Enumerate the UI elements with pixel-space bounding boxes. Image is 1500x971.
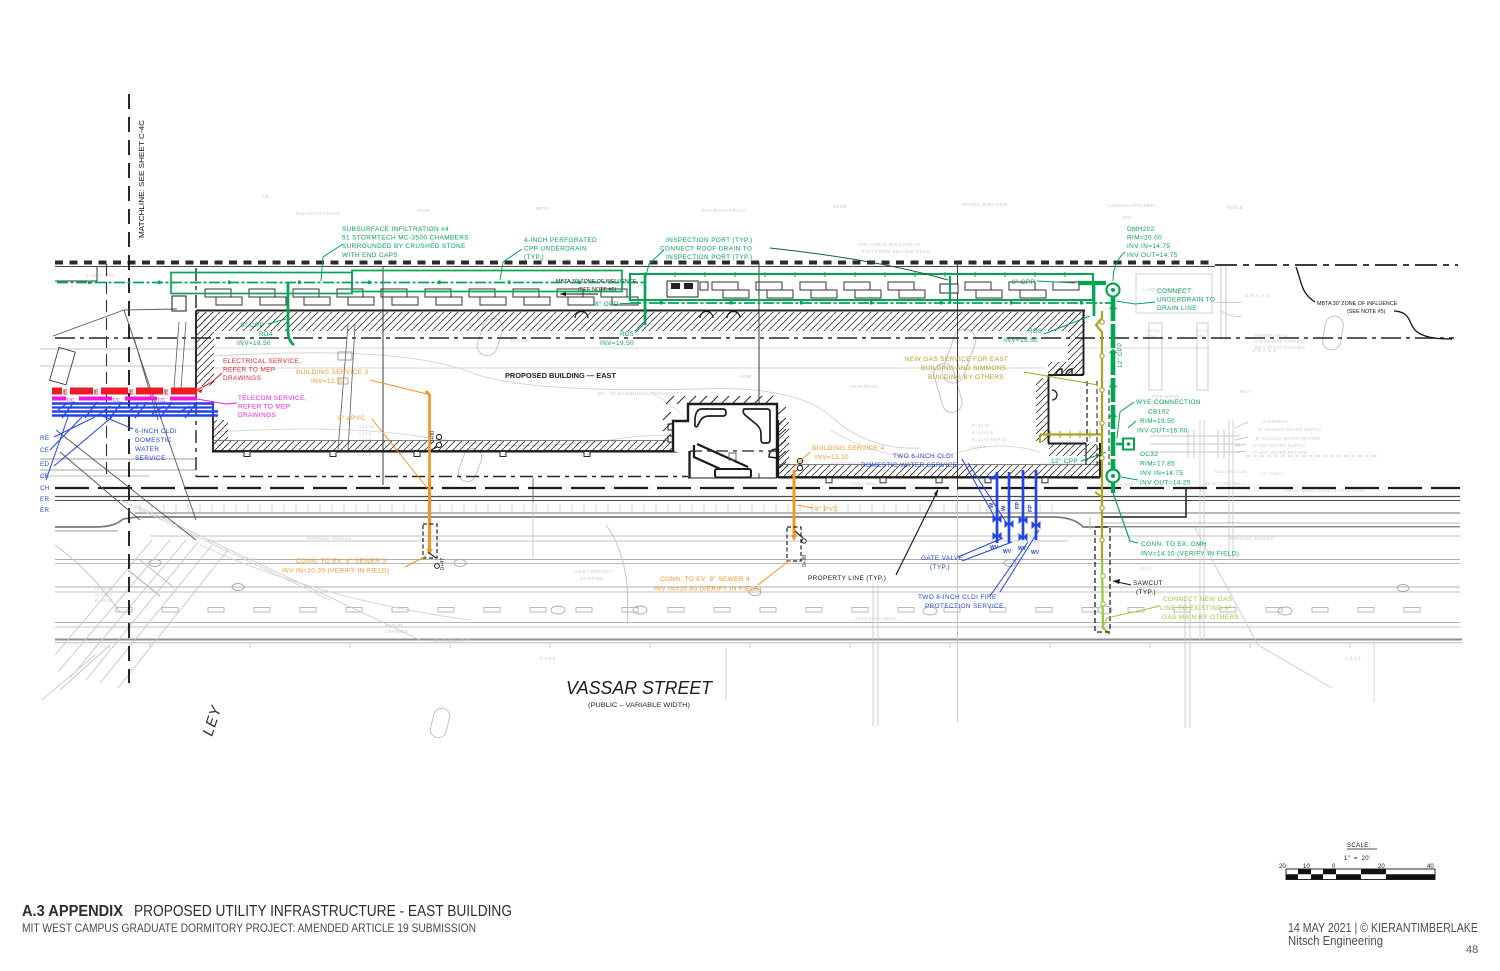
svg-text:278 VASSAR STREET: 278 VASSAR STREET bbox=[1255, 339, 1303, 344]
svg-text:CE: CE bbox=[40, 447, 49, 454]
svg-text:CE: CE bbox=[40, 473, 49, 480]
svg-text:CB102: CB102 bbox=[1148, 409, 1170, 416]
svg-text:FF CONET: FF CONET bbox=[1261, 471, 1283, 476]
svg-text:RAILROAD TRACK: RAILROAD TRACK bbox=[702, 208, 747, 213]
svg-text:INSPECTION PORT (TYP.): INSPECTION PORT (TYP.) bbox=[666, 237, 753, 244]
svg-text:RIM=17.85: RIM=17.85 bbox=[1140, 461, 1175, 468]
svg-text:I=14.10: I=14.10 bbox=[358, 424, 375, 429]
svg-text:A=14+5.6: A=14+5.6 bbox=[972, 430, 993, 435]
svg-text:SPUR: SPUR bbox=[833, 204, 847, 209]
svg-text:INV=12.10: INV=12.10 bbox=[815, 454, 849, 461]
svg-text:4' HIGH CUT: 4' HIGH CUT bbox=[86, 273, 115, 278]
svg-text:B2 - TELECOMMUNICATION DUCT: B2 - TELECOMMUNICATION DUCT bbox=[598, 391, 679, 396]
svg-text:MATCHLINE: SEE SHEET C-4C: MATCHLINE: SEE SHEET C-4C bbox=[137, 119, 146, 238]
svg-text:WYE CONNECTION: WYE CONNECTION bbox=[1136, 399, 1201, 406]
svg-text:LANDSCAPED AREA: LANDSCAPED AREA bbox=[1108, 203, 1158, 208]
svg-text:WV: WV bbox=[1003, 549, 1012, 555]
svg-text:ANT CABLE WILL ARE IN: ANT CABLE WILL ARE IN bbox=[858, 242, 921, 248]
svg-text:8" OPP: 8" OPP bbox=[595, 301, 619, 308]
svg-text:TWO 6-INCH CLDI: TWO 6-INCH CLDI bbox=[893, 453, 953, 460]
svg-text:G R A S S: G R A S S bbox=[1245, 293, 1269, 299]
svg-text:INV=19.50: INV=19.50 bbox=[237, 340, 271, 347]
svg-text:ER: ER bbox=[40, 496, 50, 503]
svg-text:(TYP.): (TYP.) bbox=[524, 254, 544, 261]
svg-text:FENCE: FENCE bbox=[1226, 205, 1243, 210]
svg-text:PROPOSED BUILDING — EAST: PROPOSED BUILDING — EAST bbox=[505, 371, 616, 380]
svg-text:PARKING SPACES: PARKING SPACES bbox=[1230, 536, 1273, 541]
svg-text:51 STORMTECH MC-3500 CHAMBERS: 51 STORMTECH MC-3500 CHAMBERS bbox=[342, 235, 469, 242]
svg-text:VASSAR STREET: VASSAR STREET bbox=[566, 678, 714, 698]
svg-text:8" CPP: 8" CPP bbox=[241, 322, 264, 329]
svg-text:FP: FP bbox=[1015, 502, 1021, 509]
svg-text:20%: 20% bbox=[1122, 215, 1132, 220]
svg-text:INV=12.50: INV=12.50 bbox=[311, 378, 345, 385]
svg-text:CH: CH bbox=[40, 485, 50, 492]
svg-text:PARKING SPACES: PARKING SPACES bbox=[308, 536, 351, 541]
svg-text:0+00: 0+00 bbox=[430, 431, 436, 443]
svg-text:E: E bbox=[129, 390, 134, 397]
svg-text:INLET PROTECT: INLET PROTECT bbox=[575, 569, 613, 574]
svg-text:0+38: 0+38 bbox=[802, 555, 808, 567]
svg-text:23 IN-DBL-WHT: 23 IN-DBL-WHT bbox=[434, 638, 470, 643]
svg-text:CONNECT: CONNECT bbox=[1157, 288, 1191, 295]
svg-text:BUILDING AND SIMMONS: BUILDING AND SIMMONS bbox=[921, 365, 1006, 372]
svg-text:E: E bbox=[63, 390, 68, 397]
svg-text:CONN. TO EV. 8" SEWER 4: CONN. TO EV. 8" SEWER 4 bbox=[660, 576, 750, 583]
svg-text:RD6: RD6 bbox=[1028, 328, 1042, 335]
svg-text:W: W bbox=[1001, 505, 1007, 511]
svg-text:TWO 8-INCH CLDI FIRE: TWO 8-INCH CLDI FIRE bbox=[918, 594, 997, 601]
svg-text:FP: FP bbox=[1028, 505, 1034, 512]
svg-text:12" CPP: 12" CPP bbox=[1051, 458, 1078, 465]
svg-text:BUILDING SERVICE 4: BUILDING SERVICE 4 bbox=[812, 445, 884, 452]
svg-text:4-INCH PERFORATED: 4-INCH PERFORATED bbox=[524, 237, 597, 244]
svg-text:CONNECT NEW GAS: CONNECT NEW GAS bbox=[1163, 596, 1232, 603]
svg-text:SURROUNDED BY CRUSHED STONE: SURROUNDED BY CRUSHED STONE bbox=[342, 243, 466, 250]
svg-text:DRAWINGS: DRAWINGS bbox=[238, 412, 276, 419]
svg-text:OVERHEAD: OVERHEAD bbox=[1262, 419, 1288, 424]
svg-text:MIT WEST CAMPUS GRADUATE DORMI: MIT WEST CAMPUS GRADUATE DORMITORY PROJE… bbox=[22, 923, 476, 935]
svg-text:SCALE:: SCALE: bbox=[1347, 843, 1371, 849]
svg-text:RIM=20.00: RIM=20.00 bbox=[1127, 235, 1162, 242]
svg-text:GAS MAIN BY OTHERS: GAS MAIN BY OTHERS bbox=[1162, 614, 1239, 621]
svg-text:0+47: 0+47 bbox=[440, 558, 446, 570]
svg-text:TUIT FROM SECOND PLAN: TUIT FROM SECOND PLAN bbox=[862, 249, 930, 255]
svg-text:6-INCH CLDI: 6-INCH CLDI bbox=[135, 428, 177, 435]
svg-text:MBTA 30' ZONE OF INFLUENCE: MBTA 30' ZONE OF INFLUENCE bbox=[1317, 301, 1398, 307]
svg-text:TELECOM SERVICE,: TELECOM SERVICE, bbox=[238, 395, 307, 402]
svg-text:WATER: WATER bbox=[135, 446, 159, 453]
svg-text:SUBSURFACE INFILTRATION #4: SUBSURFACE INFILTRATION #4 bbox=[342, 226, 449, 233]
svg-text:BUILDING BY OTHERS: BUILDING BY OTHERS bbox=[928, 374, 1004, 381]
svg-text:(TYP.): (TYP.) bbox=[1136, 589, 1156, 596]
svg-text:I=14.5: I=14.5 bbox=[972, 444, 986, 449]
svg-text:MBTA: MBTA bbox=[536, 206, 550, 211]
svg-text:4 8 8 5: 4 8 8 5 bbox=[540, 656, 556, 661]
svg-text:NEW GAS SERVICE FOR EAST: NEW GAS SERVICE FOR EAST bbox=[905, 356, 1008, 363]
svg-text:RIM=19.50: RIM=19.50 bbox=[1140, 418, 1175, 425]
svg-text:INV IN=14.75: INV IN=14.75 bbox=[1127, 243, 1170, 250]
svg-text:4" HOT WATER RETURN: 4" HOT WATER RETURN bbox=[1253, 450, 1307, 455]
svg-text:Nitsch Engineering: Nitsch Engineering bbox=[1288, 934, 1383, 948]
svg-text:I=11.8: I=11.8 bbox=[358, 452, 372, 457]
svg-text:UNDERDRAIN TO: UNDERDRAIN TO bbox=[1157, 297, 1215, 304]
svg-text:DOMESTIC: DOMESTIC bbox=[135, 437, 172, 444]
svg-text:4" HOT WATER SUPPLY: 4" HOT WATER SUPPLY bbox=[1253, 443, 1306, 448]
svg-text:6" CHILLED WATER RETURN: 6" CHILLED WATER RETURN bbox=[1256, 436, 1320, 441]
svg-text:SAWCUT: SAWCUT bbox=[1133, 580, 1163, 587]
svg-text:9+25: 9+25 bbox=[445, 561, 456, 566]
svg-text:PROPERTY LINE (TYP.): PROPERTY LINE (TYP.) bbox=[808, 575, 886, 582]
svg-text:INV IN=10.30 (VERIFY IN FIELD): INV IN=10.30 (VERIFY IN FIELD) bbox=[282, 568, 390, 575]
svg-text:CPP UNDERDRAIN: CPP UNDERDRAIN bbox=[524, 246, 587, 253]
svg-text:REFER TO MEP: REFER TO MEP bbox=[238, 404, 291, 411]
svg-text:ER: ER bbox=[40, 507, 50, 514]
svg-text:8" PVC: 8" PVC bbox=[815, 506, 838, 513]
svg-text:CHAMBER: CHAMBER bbox=[385, 629, 408, 634]
svg-text:INSPECTION PORT (TYP.): INSPECTION PORT (TYP.) bbox=[666, 254, 753, 261]
svg-text:SERVICE: SERVICE bbox=[135, 455, 166, 462]
svg-text:INV=19.50: INV=19.50 bbox=[600, 340, 634, 347]
svg-text:CONN. TO EX. 8" SEWER 3: CONN. TO EX. 8" SEWER 3 bbox=[296, 558, 386, 565]
svg-text:ROW: ROW bbox=[418, 208, 430, 213]
svg-text:INV OUT=14.25: INV OUT=14.25 bbox=[1140, 480, 1191, 487]
svg-text:MA 5 STORY PARKING: MA 5 STORY PARKING bbox=[1255, 345, 1305, 350]
svg-text:25 IN CONC WALL: 25 IN CONC WALL bbox=[1205, 481, 1247, 486]
svg-text:GATE VALVE: GATE VALVE bbox=[921, 555, 963, 562]
svg-text:CONNECT ROOF DRAIN TO: CONNECT ROOF DRAIN TO bbox=[660, 246, 752, 253]
svg-text:3D PARKING: 3D PARKING bbox=[850, 384, 880, 389]
svg-text:EXISTING: EXISTING bbox=[580, 576, 603, 581]
svg-text:REFER TO MEP: REFER TO MEP bbox=[223, 367, 276, 374]
svg-text:48: 48 bbox=[1466, 944, 1478, 956]
svg-text:CB: CB bbox=[262, 194, 269, 199]
svg-text:WITH END CAPS: WITH END CAPS bbox=[342, 252, 398, 259]
svg-text:DOMESTIC WATER SERVICE: DOMESTIC WATER SERVICE bbox=[861, 462, 957, 469]
svg-text:E: E bbox=[164, 390, 169, 397]
svg-text:PROPOSED UTILITY INFRASTRUCTUR: PROPOSED UTILITY INFRASTRUCTURE - EAST B… bbox=[134, 903, 512, 920]
svg-text:ROW: ROW bbox=[740, 374, 752, 379]
svg-text:INV=19.50: INV=19.50 bbox=[1004, 337, 1038, 344]
svg-text:B=14+0.55(P.E): B=14+0.55(P.E) bbox=[972, 437, 1007, 442]
svg-text:OC32: OC32 bbox=[1140, 451, 1158, 458]
svg-text:A.3 APPENDIX: A.3 APPENDIX bbox=[22, 903, 124, 920]
svg-text:MED GYD COM: MED GYD COM bbox=[1215, 469, 1247, 474]
svg-text:WV: WV bbox=[1031, 550, 1040, 556]
svg-text:LINE TO EXISTING 6": LINE TO EXISTING 6" bbox=[1160, 605, 1231, 612]
svg-text:14 MAY 2021 | © KIERANTIMBERLA: 14 MAY 2021 | © KIERANTIMBERLAKE bbox=[1288, 921, 1478, 935]
svg-text:(PUBLIC – VARIABLE WIDTH): (PUBLIC – VARIABLE WIDTH) bbox=[588, 702, 690, 709]
svg-text:E: E bbox=[94, 390, 99, 397]
svg-text:503.1: 503.1 bbox=[1140, 566, 1152, 571]
svg-text:REV: REV bbox=[1240, 389, 1250, 394]
svg-text:DRAIN LINE: DRAIN LINE bbox=[1157, 305, 1197, 312]
svg-text:INV=14.10 (VERIFY IN FIELD): INV=14.10 (VERIFY IN FIELD) bbox=[1141, 551, 1239, 558]
svg-text:1" = 20': 1" = 20' bbox=[1344, 856, 1371, 862]
svg-text:RE: RE bbox=[40, 435, 49, 442]
svg-text:ED: ED bbox=[40, 461, 50, 468]
svg-text:I=14.1: I=14.1 bbox=[358, 431, 372, 436]
svg-text:INV OUT=15.00: INV OUT=15.00 bbox=[1137, 428, 1188, 435]
svg-text:BUILDING SERVICE 3: BUILDING SERVICE 3 bbox=[296, 369, 368, 376]
svg-text:CONN. TO EX. DMH: CONN. TO EX. DMH bbox=[1141, 541, 1207, 548]
svg-text:RD5: RD5 bbox=[620, 331, 634, 338]
svg-text:DRAWINGS: DRAWINGS bbox=[223, 375, 261, 382]
svg-text:20: 20 bbox=[1279, 864, 1286, 870]
svg-text:CONC WALL: CONC WALL bbox=[850, 481, 878, 486]
svg-text:RD4: RD4 bbox=[259, 331, 273, 338]
svg-text:(SEE NOTE #5): (SEE NOTE #5) bbox=[1347, 309, 1386, 315]
svg-text:PROTECTION SERVICE: PROTECTION SERVICE bbox=[925, 603, 1004, 610]
svg-text:12" CPP: 12" CPP bbox=[1118, 342, 1124, 368]
svg-text:INV OUT=14.75: INV OUT=14.75 bbox=[1127, 252, 1178, 259]
svg-text:P=15.07: P=15.07 bbox=[972, 423, 991, 428]
svg-text:(TYP.): (TYP.) bbox=[930, 564, 950, 571]
svg-text:INV IN=14.75: INV IN=14.75 bbox=[1140, 470, 1183, 477]
svg-text:GRAND JUNCTION: GRAND JUNCTION bbox=[962, 202, 1007, 207]
svg-text:INV IN=10.80 (VERIFY IN FIELD): INV IN=10.80 (VERIFY IN FIELD) bbox=[654, 586, 762, 593]
svg-text:8" CPP: 8" CPP bbox=[1012, 279, 1035, 286]
svg-text:RAILROAD TRACK: RAILROAD TRACK bbox=[296, 211, 341, 216]
svg-text:6" CHILLED WATER SUPPLY: 6" CHILLED WATER SUPPLY bbox=[1259, 427, 1322, 432]
svg-text:8" ⌀PVC: 8" ⌀PVC bbox=[338, 415, 365, 422]
svg-text:C 8 0 1: C 8 0 1 bbox=[1345, 656, 1362, 661]
svg-text:DMH202: DMH202 bbox=[1127, 226, 1155, 233]
svg-text:23 IN CONC WALL: 23 IN CONC WALL bbox=[855, 616, 897, 621]
svg-text:ELECTRICAL SERVICE,: ELECTRICAL SERVICE, bbox=[223, 358, 301, 365]
